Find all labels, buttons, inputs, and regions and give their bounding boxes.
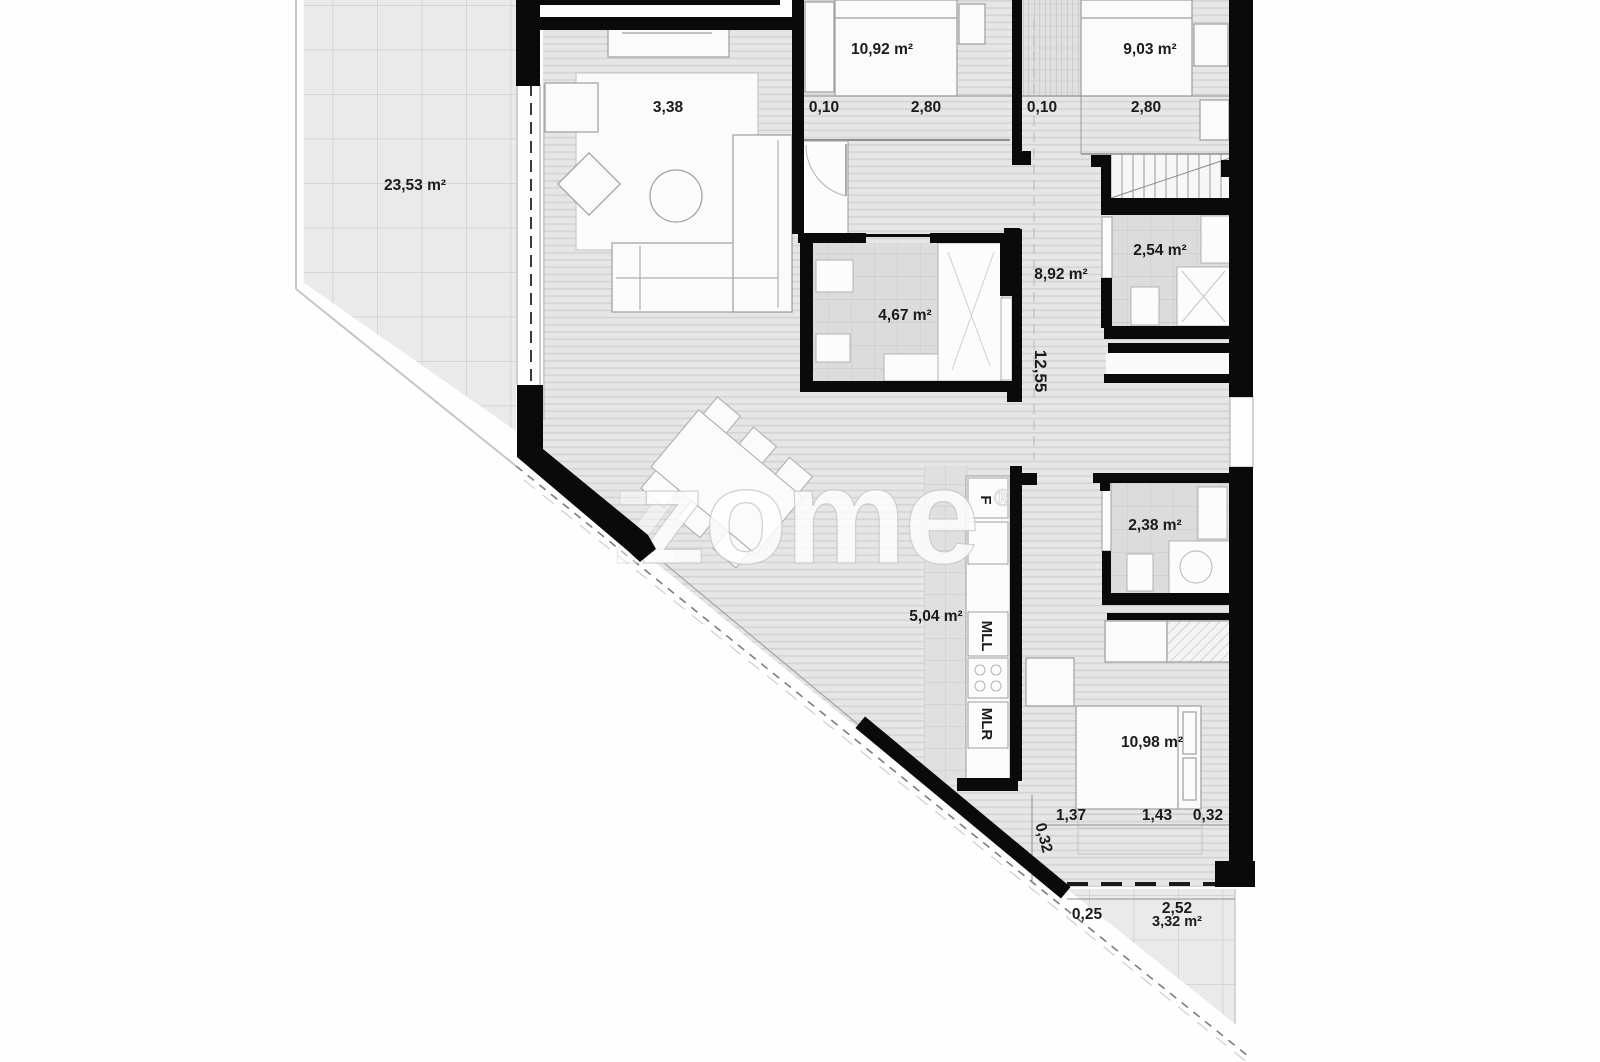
svg-text:10,98 m²: 10,98 m² bbox=[1121, 734, 1183, 751]
svg-text:3,38: 3,38 bbox=[653, 99, 684, 116]
svg-text:MLL: MLL bbox=[978, 621, 995, 652]
svg-text:23,53 m²: 23,53 m² bbox=[384, 177, 446, 194]
svg-text:F: F bbox=[977, 495, 994, 504]
svg-text:2,38 m²: 2,38 m² bbox=[1128, 517, 1181, 534]
svg-text:3,32 m²: 3,32 m² bbox=[1152, 914, 1202, 930]
svg-text:1,43: 1,43 bbox=[1142, 807, 1173, 824]
svg-text:5,04 m²: 5,04 m² bbox=[909, 608, 962, 625]
svg-text:®: ® bbox=[994, 485, 1012, 512]
svg-text:zome: zome bbox=[638, 440, 978, 592]
svg-text:4,67 m²: 4,67 m² bbox=[878, 307, 931, 324]
svg-text:9,03 m²: 9,03 m² bbox=[1123, 41, 1176, 58]
svg-text:0,10: 0,10 bbox=[1027, 99, 1057, 116]
svg-text:MLR: MLR bbox=[978, 708, 995, 741]
svg-text:12,55: 12,55 bbox=[1031, 350, 1050, 393]
svg-text:0,10: 0,10 bbox=[809, 99, 839, 116]
svg-text:0,25: 0,25 bbox=[1072, 906, 1103, 923]
svg-text:8,92 m²: 8,92 m² bbox=[1034, 266, 1087, 283]
svg-text:0,32: 0,32 bbox=[1193, 807, 1223, 824]
svg-text:1,37: 1,37 bbox=[1056, 807, 1086, 824]
svg-text:2,80: 2,80 bbox=[1131, 99, 1161, 116]
svg-text:10,92 m²: 10,92 m² bbox=[851, 41, 913, 58]
svg-text:2,80: 2,80 bbox=[911, 99, 941, 116]
svg-text:2,54 m²: 2,54 m² bbox=[1133, 242, 1186, 259]
